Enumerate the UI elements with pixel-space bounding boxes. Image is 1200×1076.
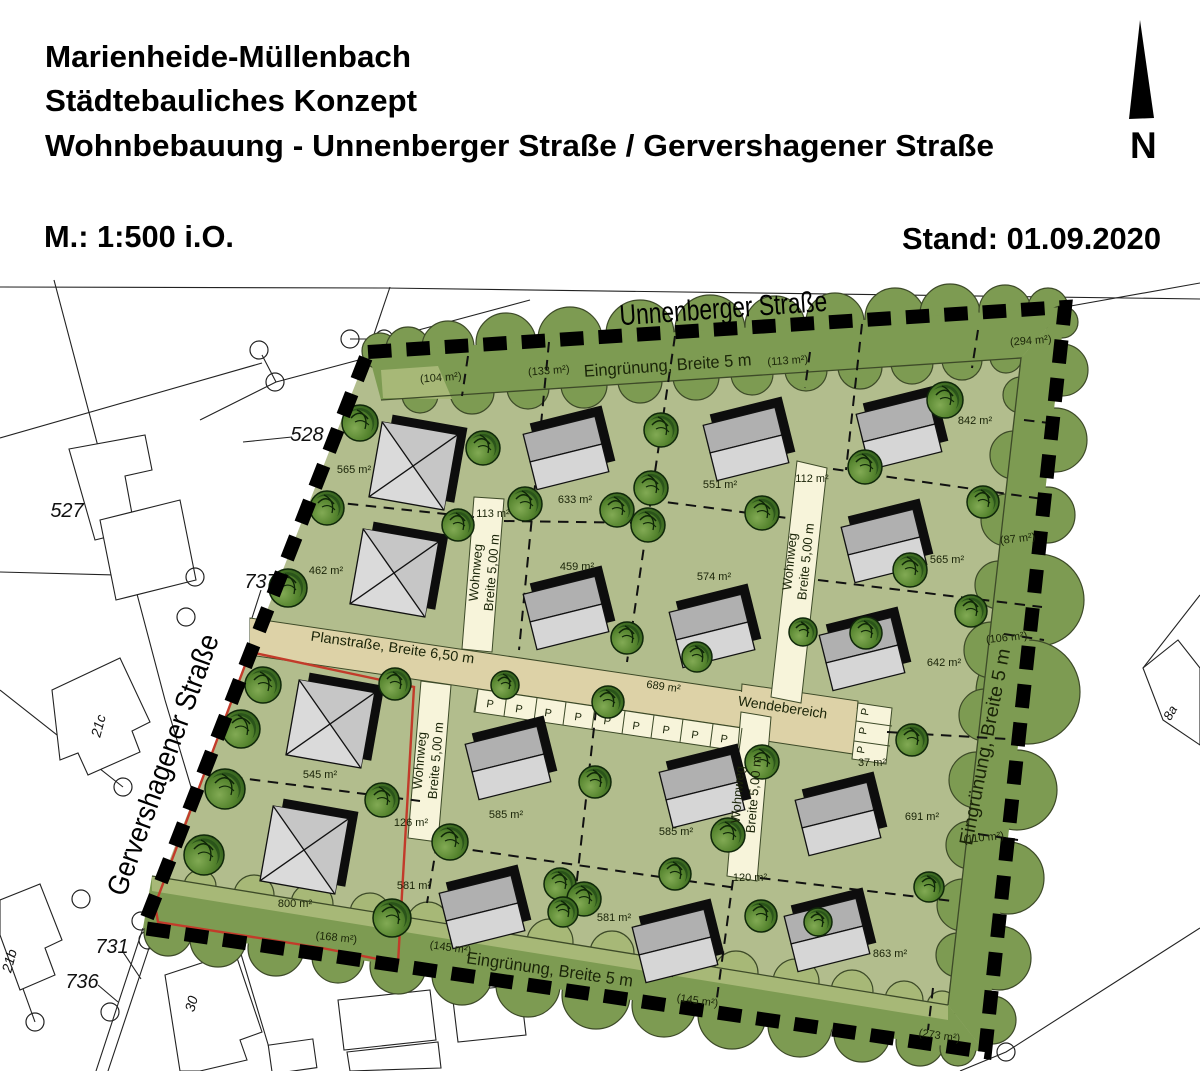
- svg-text:126 m²: 126 m²: [394, 817, 429, 829]
- svg-text:528: 528: [290, 424, 323, 446]
- svg-text:633 m²: 633 m²: [558, 494, 593, 506]
- svg-text:527: 527: [50, 500, 84, 522]
- svg-text:585 m²: 585 m²: [489, 809, 524, 821]
- svg-text:Stand: 01.09.2020: Stand: 01.09.2020: [902, 221, 1161, 256]
- svg-text:581 m²: 581 m²: [397, 880, 432, 892]
- svg-text:545 m²: 545 m²: [303, 769, 338, 781]
- svg-text:112 m²: 112 m²: [795, 473, 829, 485]
- svg-text:462 m²: 462 m²: [309, 565, 344, 577]
- svg-text:Marienheide-Müllenbach: Marienheide-Müllenbach: [45, 39, 411, 74]
- svg-text:120 m²: 120 m²: [733, 872, 768, 884]
- svg-text:736: 736: [65, 971, 99, 993]
- svg-text:551 m²: 551 m²: [703, 479, 738, 491]
- svg-text:N: N: [1130, 125, 1157, 166]
- svg-text:113 m²: 113 m²: [476, 508, 510, 520]
- svg-text:574 m²: 574 m²: [697, 571, 732, 583]
- svg-text:565 m²: 565 m²: [930, 554, 965, 566]
- svg-text:565 m²: 565 m²: [337, 464, 372, 476]
- svg-text:800 m²: 800 m²: [278, 898, 313, 910]
- svg-text:Städtebauliches Konzept: Städtebauliches Konzept: [45, 83, 417, 118]
- svg-text:642 m²: 642 m²: [927, 657, 962, 669]
- svg-text:M.: 1:500 i.O.: M.: 1:500 i.O.: [44, 219, 234, 254]
- svg-text:581 m²: 581 m²: [597, 912, 632, 924]
- svg-text:459 m²: 459 m²: [560, 561, 595, 573]
- svg-text:842 m²: 842 m²: [958, 415, 993, 427]
- svg-text:37 m²: 37 m²: [858, 757, 886, 769]
- svg-text:Wohnbebauung - Unnenberger Str: Wohnbebauung - Unnenberger Straße / Gerv…: [45, 128, 994, 163]
- svg-text:691 m²: 691 m²: [905, 811, 940, 823]
- svg-text:731: 731: [95, 936, 128, 958]
- svg-text:863 m²: 863 m²: [873, 948, 908, 960]
- svg-text:585 m²: 585 m²: [659, 826, 694, 838]
